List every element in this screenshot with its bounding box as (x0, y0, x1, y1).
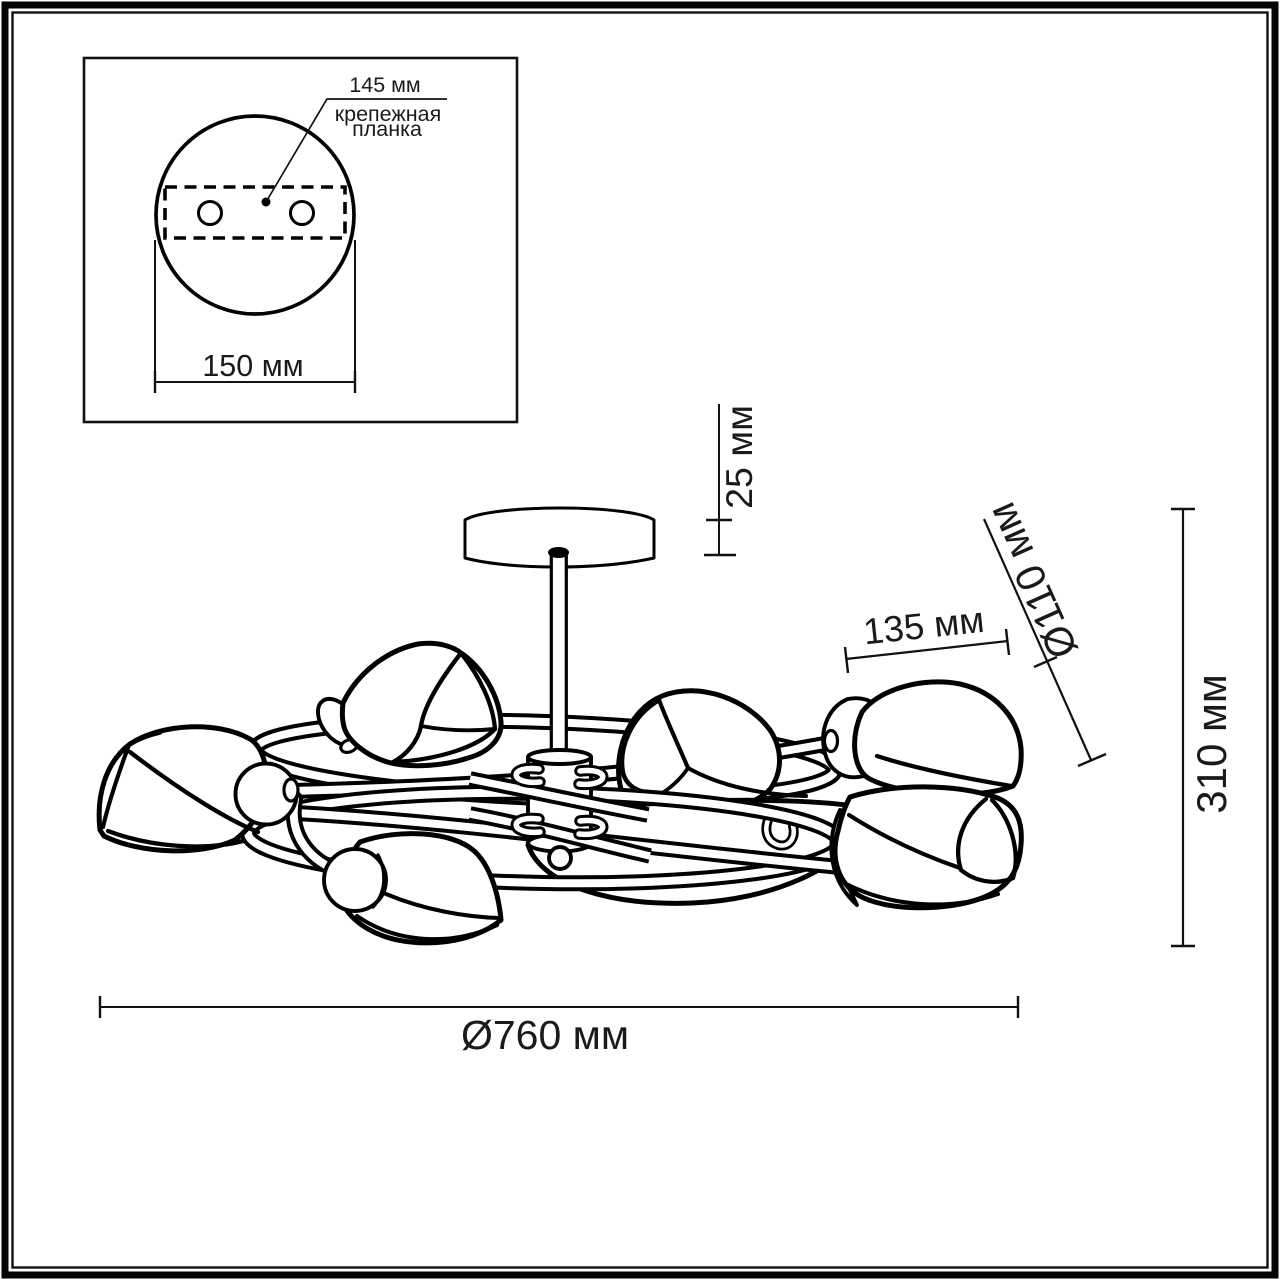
svg-text:планка: планка (352, 117, 422, 141)
svg-text:310 мм: 310 мм (1188, 674, 1235, 814)
svg-text:Ø760 мм: Ø760 мм (461, 1012, 629, 1058)
svg-text:25 мм: 25 мм (718, 405, 760, 509)
svg-text:150 мм: 150 мм (202, 349, 303, 383)
svg-text:145 мм: 145 мм (349, 73, 420, 97)
